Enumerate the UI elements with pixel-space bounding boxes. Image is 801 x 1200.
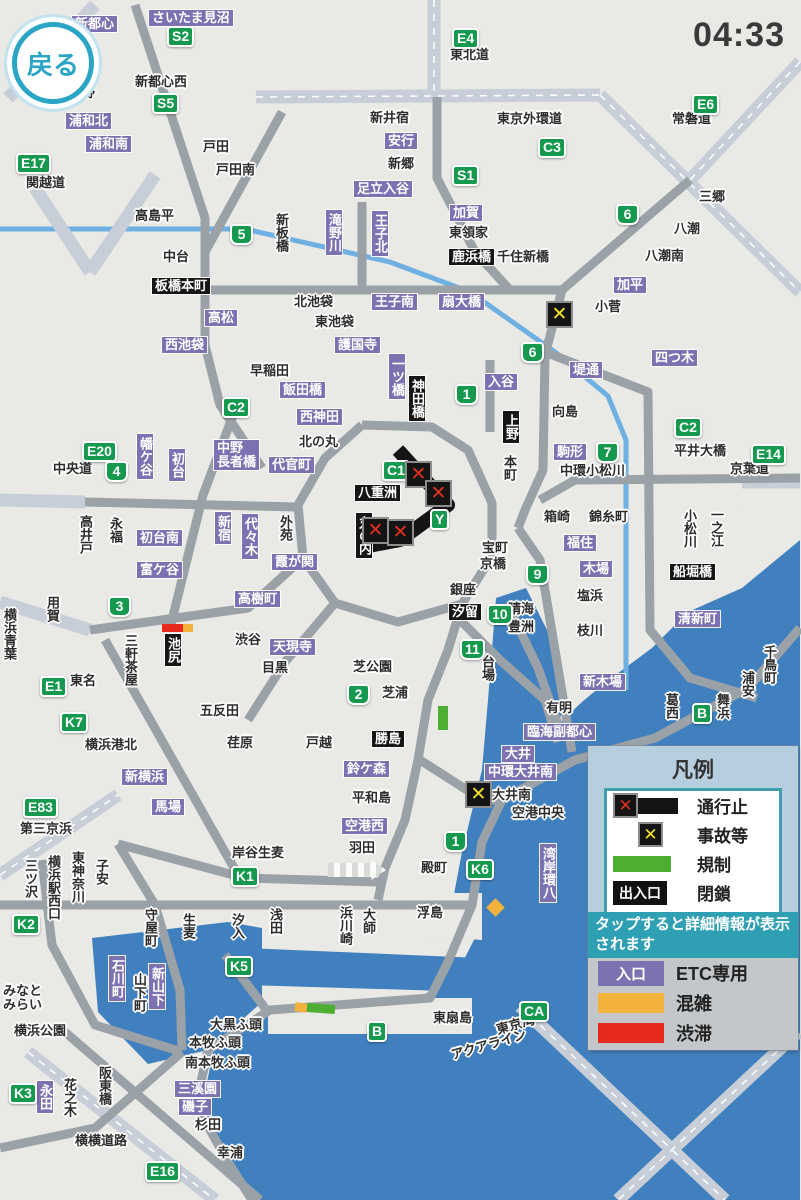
place-label: 葛西	[664, 693, 678, 719]
place-label: 渋谷	[235, 633, 261, 647]
entrance-label[interactable]: 木場	[580, 561, 612, 577]
route-number-badge: 6	[616, 204, 639, 225]
place-label: 外苑	[278, 515, 292, 541]
entrance-label[interactable]: 福住	[564, 535, 596, 551]
place-label: 横浜公園	[14, 1024, 66, 1038]
place-label: 東名	[70, 674, 96, 688]
legend-label: 通行止	[697, 793, 773, 818]
place-label: 平和島	[352, 791, 391, 805]
entrance-label[interactable]: 王子北	[372, 211, 388, 256]
place-label: 東神奈川	[70, 851, 84, 903]
route-badge: Y	[430, 509, 449, 530]
entrance-label[interactable]: 霞が関	[272, 554, 317, 570]
place-label: 三軒茶屋	[123, 634, 137, 686]
place-label: 北池袋	[294, 295, 333, 309]
entrance-label[interactable]: 扇大橋	[439, 294, 484, 310]
entrance-label[interactable]: 王子南	[372, 294, 417, 310]
legend-row-jam: 渋滞	[588, 1018, 798, 1048]
place-label: 岸谷生麦	[232, 846, 284, 860]
congestion-segment[interactable]	[294, 1002, 307, 1013]
place-label: 八潮南	[645, 249, 684, 263]
entrance-label[interactable]: 湾岸環八	[540, 844, 556, 902]
facility-label[interactable]: 船堀橋	[670, 564, 715, 580]
place-label: 大師	[361, 908, 375, 934]
regulation-segment[interactable]	[307, 1003, 336, 1014]
legend-label: 渋滞	[676, 1020, 712, 1046]
entrance-label[interactable]: 初台	[169, 449, 185, 481]
route-badge: S2	[167, 26, 194, 47]
closure-icon: ✕	[613, 793, 678, 818]
place-label: 台場	[480, 655, 494, 681]
congestion-segment[interactable]	[183, 624, 193, 632]
legend-label: 閉鎖	[697, 880, 773, 905]
route-badge: E20	[82, 441, 117, 462]
entrance-label[interactable]: 天現寺	[270, 639, 315, 655]
accident-marker[interactable]: ✕	[465, 781, 492, 808]
entrance-label[interactable]: 馬場	[152, 799, 184, 815]
place-label: 千鳥町	[762, 645, 776, 684]
place-label: 芝公園	[353, 660, 392, 674]
place-label: 東池袋	[315, 315, 354, 329]
place-label: 新郷	[388, 157, 414, 171]
place-label: 大井南	[492, 788, 531, 802]
place-label: 京橋	[480, 557, 506, 571]
route-number-badge: 2	[347, 684, 370, 705]
entrance-label[interactable]: 新都心	[72, 16, 117, 32]
place-label: 高島平	[135, 209, 174, 223]
entrance-label[interactable]: 新宿	[215, 512, 231, 544]
place-label: 本牧ふ頭	[189, 1036, 241, 1050]
entrance-label[interactable]: 中野 長者橋	[214, 440, 259, 470]
place-label: 銀座	[450, 583, 476, 597]
place-label: 小菅	[595, 300, 621, 314]
place-label: 新都心西	[135, 75, 187, 89]
facility-label[interactable]: 汐留	[449, 604, 481, 620]
place-label: 中台	[163, 250, 189, 264]
entrance-label[interactable]: 空港西	[342, 818, 387, 834]
route-number-badge: 7	[596, 442, 619, 463]
place-label: 三郷	[699, 190, 725, 204]
place-label: 目黒	[262, 661, 288, 675]
legend-label: 規制	[697, 851, 773, 876]
facility-label[interactable]: 池尻	[165, 634, 181, 666]
traffic-map-app: さいたま見沼新都心S2野新都心西S5浦和北浦和南E17関越道戸田戸田南E4東北道…	[0, 0, 801, 1200]
entrance-label[interactable]: 富ケ谷	[137, 562, 182, 578]
route-badge: C2	[674, 417, 702, 438]
place-label: 第三京浜	[20, 822, 72, 836]
entrance-label[interactable]: 新横浜	[122, 769, 167, 785]
route-number-badge: 3	[108, 596, 131, 617]
place-label: 浅田	[268, 908, 282, 934]
entrance-label[interactable]: 新山下	[149, 964, 165, 1009]
back-button-label: 戻る	[27, 45, 79, 82]
entrance-label[interactable]: 高松	[205, 310, 237, 326]
place-label: 守屋町	[143, 908, 157, 947]
legend-label: ETC専用	[676, 960, 748, 986]
entrance-label[interactable]: 加賀	[450, 205, 482, 221]
facility-label[interactable]: 八重洲	[355, 485, 400, 501]
legend-row-etc-entrance: 入口 ETC専用	[588, 958, 798, 988]
place-label: 東北道	[450, 48, 489, 62]
place-label: 子安	[94, 859, 108, 885]
route-badge: S1	[452, 165, 479, 186]
route-number-badge: 1	[455, 384, 478, 405]
entrance-label[interactable]: 駒形	[554, 444, 586, 460]
route-number-badge: 10	[487, 604, 513, 625]
place-label: 荏原	[227, 736, 253, 750]
route-badge: B	[692, 703, 712, 724]
place-label: 有明	[546, 701, 572, 715]
route-badge: B	[367, 1021, 387, 1042]
entrance-label[interactable]: 清新町	[675, 611, 720, 627]
place-label: 箱崎	[544, 510, 570, 524]
entrance-label[interactable]: 堤通	[570, 362, 602, 378]
congestion-icon	[598, 993, 664, 1013]
route-badge: E4	[452, 28, 479, 49]
entrance-label[interactable]: 新木場	[580, 674, 625, 690]
place-label: 横浜駅西口	[46, 855, 60, 920]
place-label: 横浜青葉	[2, 608, 16, 660]
legend-row-congestion: 混雑	[588, 988, 798, 1018]
place-label: 戸田	[203, 140, 229, 154]
place-label: 東領家	[449, 226, 488, 240]
legend-section-2: 入口 ETC専用 混雑 渋滞	[588, 958, 798, 1050]
closure-marker[interactable]: ✕	[387, 519, 414, 546]
place-label: 浦安	[740, 671, 754, 697]
place-label: 殿町	[421, 861, 447, 875]
route-badge: K7	[60, 712, 88, 733]
place-label: 早稲田	[250, 364, 289, 378]
route-number-badge: 6	[521, 342, 544, 363]
entrance-label[interactable]: さいたま見沼	[149, 10, 233, 26]
route-number-badge: 1	[444, 831, 467, 852]
entrance-label[interactable]: 高樹町	[235, 591, 280, 607]
place-label: 横横道路	[75, 1134, 127, 1148]
entrance-label[interactable]: 初台南	[137, 530, 182, 546]
place-label: 舞浜	[715, 693, 729, 719]
entrance-label[interactable]: 幡ケ谷	[137, 434, 153, 479]
legend-row-closure: ✕ 通行止	[607, 791, 779, 820]
back-button[interactable]: 戻る	[12, 22, 94, 104]
route-badge: S5	[152, 93, 179, 114]
route-badge: C2	[222, 397, 250, 418]
regulation-icon	[613, 856, 671, 872]
entrance-label[interactable]: 磯子	[179, 1099, 211, 1115]
entrance-label[interactable]: 浦和南	[86, 136, 131, 152]
place-label: 横浜港北	[85, 738, 137, 752]
entrance-label[interactable]: 代官町	[269, 457, 314, 473]
place-label: 花之木	[62, 1078, 76, 1117]
route-badge: E14	[751, 444, 786, 465]
facility-label[interactable]: 勝島	[372, 731, 404, 747]
place-label: 新井宿	[370, 111, 409, 125]
route-badge: E17	[16, 153, 51, 174]
entrance-label[interactable]: 一ツ橋	[389, 354, 405, 399]
entrance-label[interactable]: 安行	[385, 133, 417, 149]
place-label: 空港中央	[512, 806, 564, 820]
entrance-label[interactable]: 石川町	[109, 956, 125, 1001]
route-badge: E83	[23, 797, 58, 818]
route-badge: K3	[9, 1083, 37, 1104]
legend-symbol-box: ✕ 通行止 ✕ 事故等 規制 出入口 閉鎖	[604, 788, 782, 918]
route-number-badge: 9	[526, 564, 549, 585]
closure-marker[interactable]: ✕	[425, 480, 452, 507]
route-badge: E16	[145, 1161, 180, 1182]
place-label: 東京外環道	[497, 112, 562, 126]
facility-label[interactable]: 鹿浜橋	[449, 249, 494, 265]
legend-panel: 凡例 ✕ 通行止 ✕ 事故等 規制 出入口 閉鎖 タップすると詳細情報が表示され…	[588, 746, 798, 1050]
clock: 04:33	[665, 16, 785, 55]
entrance-label[interactable]: 大井	[502, 746, 534, 762]
entrance-label[interactable]: 中環大井南	[485, 764, 556, 780]
place-label: 北の丸	[299, 435, 338, 449]
place-label: 中環小松川	[560, 464, 625, 478]
place-label: 千住新橋	[497, 250, 549, 264]
legend-row-accident: ✕ 事故等	[607, 820, 779, 849]
route-badge: K2	[12, 914, 40, 935]
jam-icon	[598, 1023, 664, 1043]
place-label: 本町	[502, 455, 516, 481]
legend-label: 事故等	[697, 822, 773, 847]
entrance-label[interactable]: 飯田橋	[280, 382, 325, 398]
place-label: 塩浜	[577, 589, 603, 603]
place-label: 関越道	[26, 176, 65, 190]
route-badge: K5	[225, 956, 253, 977]
place-label: 大黒ふ頭	[210, 1018, 262, 1032]
place-label: 中央道	[53, 462, 92, 476]
place-label: 永福	[108, 517, 122, 543]
place-label: 浮島	[417, 906, 443, 920]
place-label: 向島	[552, 405, 578, 419]
place-label: 錦糸町	[589, 510, 628, 524]
legend-label: 混雑	[676, 990, 712, 1016]
jam-segment[interactable]	[162, 624, 183, 632]
place-label: 小松川	[682, 509, 696, 548]
route-number-badge: 11	[460, 639, 485, 660]
regulation-segment[interactable]	[438, 706, 448, 730]
entrance-label[interactable]: 足立入谷	[354, 181, 412, 197]
place-label: 三ツ沢	[23, 859, 37, 898]
route-number-badge: 5	[230, 224, 253, 245]
entrance-label[interactable]: 四つ木	[652, 350, 697, 366]
route-badge: E6	[692, 94, 719, 115]
route-number-badge: 4	[105, 461, 128, 482]
place-label: 宝町	[482, 541, 508, 555]
place-label: 羽田	[349, 841, 375, 855]
place-label: 汐入	[230, 913, 244, 939]
closure-marker[interactable]: ✕	[362, 517, 389, 544]
route-badge: CA	[519, 1001, 549, 1022]
entrance-label[interactable]: 浦和北	[66, 113, 111, 129]
facility-label[interactable]: 板橋本町	[152, 278, 210, 294]
accident-marker[interactable]: ✕	[546, 301, 573, 328]
place-label: 戸田南	[216, 163, 255, 177]
entrance-label[interactable]: 永田	[37, 1081, 53, 1113]
place-label: 幸浦	[217, 1146, 243, 1160]
route-badge: E1	[40, 676, 67, 697]
place-label: 用賀	[45, 596, 59, 622]
route-badge: K6	[466, 859, 494, 880]
entrance-label[interactable]: 加平	[614, 277, 646, 293]
place-label: 浜川崎	[338, 906, 352, 945]
place-label: 東扇島	[433, 1011, 472, 1025]
place-label: 八潮	[674, 222, 700, 236]
place-label: 山下町	[132, 973, 146, 1012]
place-label: 新板橋	[274, 213, 288, 252]
entrance-badge: 入口	[598, 961, 664, 986]
entrance-label[interactable]: 臨海副都心	[524, 724, 595, 740]
place-label: 戸越	[306, 736, 332, 750]
entrance-label[interactable]: 西池袋	[162, 337, 207, 353]
entrance-label[interactable]: 西神田	[297, 409, 342, 425]
entrance-label[interactable]: 入谷	[485, 374, 517, 390]
place-label: 杉田	[195, 1118, 221, 1132]
legend-note: タップすると詳細情報が表示されます	[588, 912, 798, 958]
entrance-label[interactable]: 代々木	[242, 514, 258, 559]
place-label: 阪東橋	[97, 1066, 111, 1105]
route-badge: C3	[538, 137, 566, 158]
entrance-label[interactable]: 護国寺	[335, 337, 380, 353]
route-badge: K1	[231, 866, 259, 887]
gate-badge: 出入口	[613, 881, 667, 905]
accident-icon: ✕	[638, 822, 663, 847]
legend-row-regulation: 規制	[607, 849, 779, 878]
facility-label[interactable]: 上野	[503, 411, 519, 443]
place-label: 一之江	[709, 508, 723, 547]
place-label: 豊洲	[508, 620, 534, 634]
clock-time: 04:33	[693, 16, 785, 54]
legend-row-gate-closed: 出入口 閉鎖	[607, 878, 779, 907]
place-label: 芝浦	[382, 686, 408, 700]
entrance-label[interactable]: 鈴ケ森	[344, 761, 389, 777]
place-label: みなと みらい	[3, 984, 42, 1012]
entrance-label[interactable]: 三溪園	[175, 1081, 220, 1097]
place-label: 高井戸	[78, 515, 92, 554]
place-label: 南本牧ふ頭	[185, 1056, 250, 1070]
place-label: 枝川	[577, 624, 603, 638]
place-label: 五反田	[200, 704, 239, 718]
legend-title: 凡例	[588, 746, 798, 784]
facility-label[interactable]: 神田橋	[409, 376, 425, 421]
entrance-label[interactable]: 滝野川	[326, 210, 342, 255]
place-label: 平井大橋	[674, 444, 726, 458]
place-label: 生麦	[181, 913, 195, 939]
